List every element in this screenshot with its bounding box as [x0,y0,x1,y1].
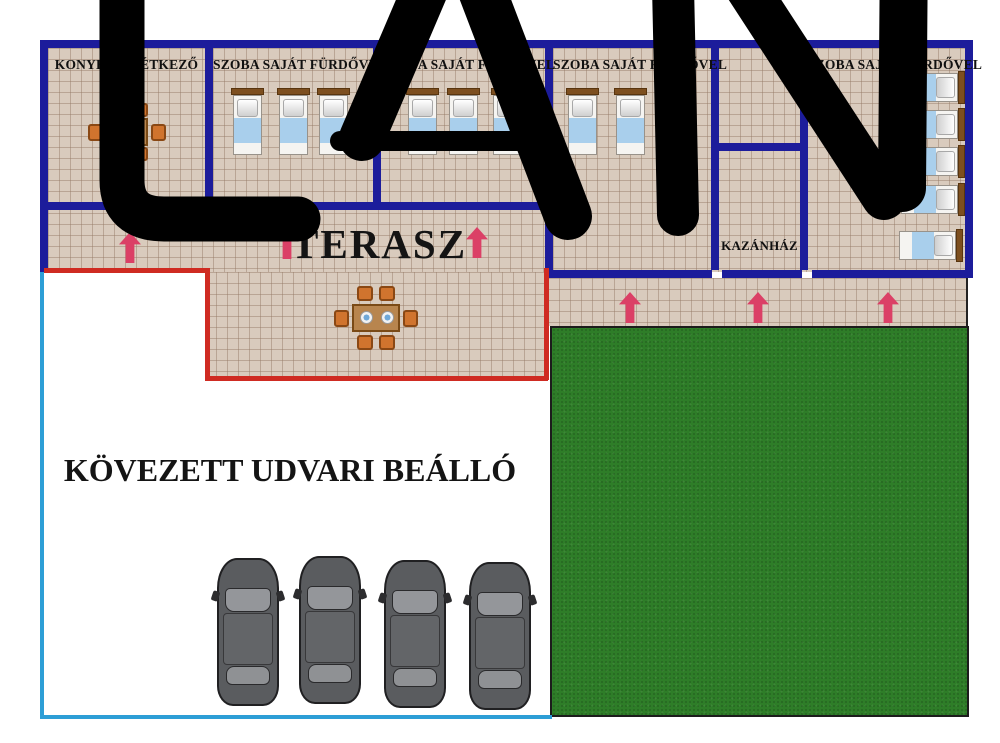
car-icon [384,560,446,708]
car-icon [217,558,279,706]
bed-icon [319,88,348,155]
wall-szoba2-szoba3 [545,48,553,270]
bed-icon [449,88,478,155]
room-label-szoba2: SZOBA SAJÁT FÜRDŐVEL [381,57,545,73]
parking-label: KÖVEZETT UDVARI BEÁLLÓ [50,452,530,489]
wall-middle-szoba4 [800,48,808,270]
bed-icon [664,88,693,155]
room-label-kazanhaz: KAZÁNHÁZ [719,238,800,254]
room-label-szoba3: SZOBA SAJÁT FÜRDŐVEL [553,57,711,73]
terrace-border-top [44,268,209,273]
plate-icon [124,120,137,133]
parking-border-bottom [40,715,552,719]
terrace-border-right [544,268,549,380]
wall-right-section-bottom-3 [812,270,973,278]
terrace-border-left [205,268,210,380]
bed-icon [408,88,437,155]
chair-icon [131,103,148,117]
room-label-szoba4: SZOBA SAJÁT FÜRDŐVEL [808,57,965,73]
bed-icon [901,185,965,214]
bed-icon [616,88,645,155]
chair-icon [379,335,395,350]
car-icon [469,562,531,710]
bed-icon [901,73,965,102]
chair-icon [357,335,373,350]
wall-konyha-szoba1 [205,48,213,202]
bed-icon [279,88,308,155]
bed-icon [901,147,965,176]
bed-icon [568,88,597,155]
chair-icon [379,286,395,301]
bed-icon [899,231,963,260]
wall-szoba3-middle [711,48,719,270]
bed-icon [233,88,262,155]
wall-right [965,48,973,278]
terrace-border-bottom [205,376,548,381]
wall-right-section-bottom-1 [548,270,712,278]
bed-icon [493,88,522,155]
wall-left [40,48,48,272]
car-icon [299,556,361,704]
chair-icon [403,310,418,327]
lawn [550,326,969,717]
wall-kazanhaz-top [719,143,800,151]
chair-icon [88,124,103,141]
chair-icon [334,310,349,327]
parking-border-left [40,272,44,718]
chair-icon [151,124,166,141]
wall-right-section-bottom-2 [722,270,802,278]
floor-plan: KONYHA ÉS ÉTKEZŐ SZOBA SAJÁT FÜRDŐVEL SZ… [0,0,1000,743]
room-label-konyha: KONYHA ÉS ÉTKEZŐ [48,57,205,73]
terrace-label: TERASZ [291,220,467,268]
plate-icon [360,311,373,324]
chair-icon [357,286,373,301]
room-label-szoba1: SZOBA SAJÁT FÜRDŐVEL [213,57,373,73]
bed-icon [901,110,965,139]
wall-left-section-bottom [40,202,548,210]
plate-icon [381,311,394,324]
chair-icon [131,147,148,161]
wall-top [40,40,973,48]
